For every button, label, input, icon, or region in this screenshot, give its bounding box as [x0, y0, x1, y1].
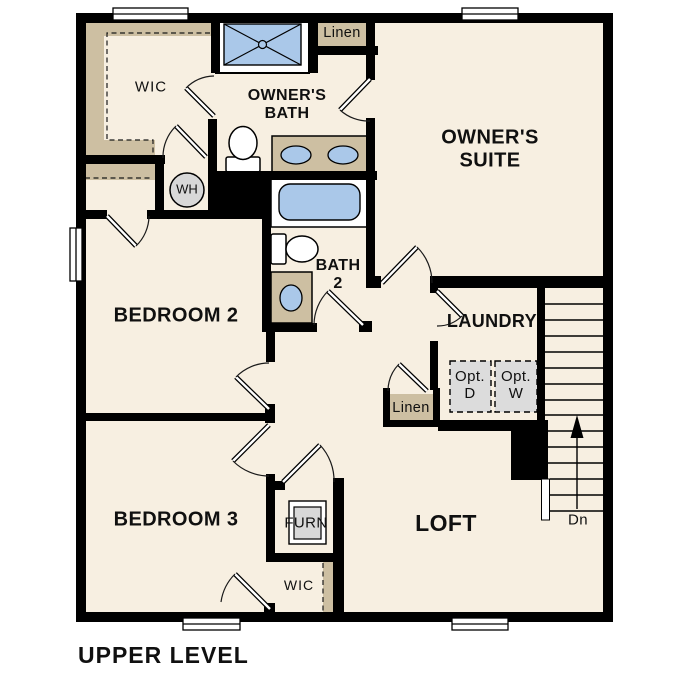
- window: [113, 8, 188, 20]
- linen-hall-label: Linen: [392, 400, 429, 416]
- bedroom2-label: BEDROOM 2: [114, 305, 239, 328]
- sink: [281, 146, 311, 164]
- owners-suite-line1: OWNER'S: [441, 126, 539, 148]
- wic-bottom-label: WIC: [284, 578, 314, 594]
- wic-bottom-shelf: [323, 562, 333, 614]
- wic-top-label: WIC: [135, 80, 167, 97]
- owners-suite-line2: SUITE: [460, 149, 521, 171]
- bath2-line2: 2: [333, 275, 342, 292]
- opt-dryer-label: Opt.D: [455, 369, 485, 403]
- owners-bath-line2: BATH: [265, 105, 310, 122]
- owners-bath-label: OWNER'SBATH: [248, 87, 327, 123]
- bath2-vanity: [271, 272, 312, 323]
- floor-plan-drawing: [0, 0, 687, 687]
- wic-shelf-left: [86, 36, 104, 155]
- opt-dryer-line1: Opt.: [455, 368, 485, 385]
- page-title: UPPER LEVEL: [78, 642, 249, 668]
- bath2-label: BATH2: [316, 257, 361, 293]
- window: [462, 8, 518, 20]
- chase: [511, 431, 548, 480]
- wic-shelf-top: [86, 21, 212, 36]
- opt-washer-line1: Opt.: [501, 368, 531, 385]
- laundry-label: LAUNDRY: [447, 311, 537, 331]
- wic-shelf-bottom: [104, 140, 155, 155]
- shower-drain: [259, 41, 267, 49]
- linen-top-label: Linen: [323, 25, 360, 41]
- owners-suite-label: OWNER'SSUITE: [441, 126, 539, 171]
- bedroom3-label: BEDROOM 3: [114, 509, 239, 532]
- window: [183, 618, 240, 630]
- window: [452, 618, 508, 630]
- owners-bath-line1: OWNER'S: [248, 87, 327, 104]
- stair-entry-opening: [542, 479, 550, 520]
- opt-washer-label: Opt.W: [501, 369, 531, 403]
- toilet: [271, 234, 318, 264]
- loft-label: LOFT: [415, 510, 477, 536]
- furnace-label: FURN: [284, 516, 327, 533]
- sink: [280, 285, 302, 311]
- floor-plan: WIC OWNER'SBATH Linen OWNER'SSUITE WH BE…: [0, 0, 687, 687]
- stairs-down-label: Dn: [568, 513, 588, 530]
- owners-bath-vanity: [272, 136, 368, 172]
- opt-dryer-line2: D: [464, 385, 475, 402]
- bath2-line1: BATH: [316, 257, 361, 274]
- window: [70, 228, 82, 281]
- sink: [328, 146, 358, 164]
- opt-washer-line2: W: [509, 385, 524, 402]
- bathtub: [271, 177, 367, 227]
- water-heater-label: WH: [176, 183, 198, 198]
- shower: [216, 16, 309, 73]
- toilet: [226, 127, 260, 173]
